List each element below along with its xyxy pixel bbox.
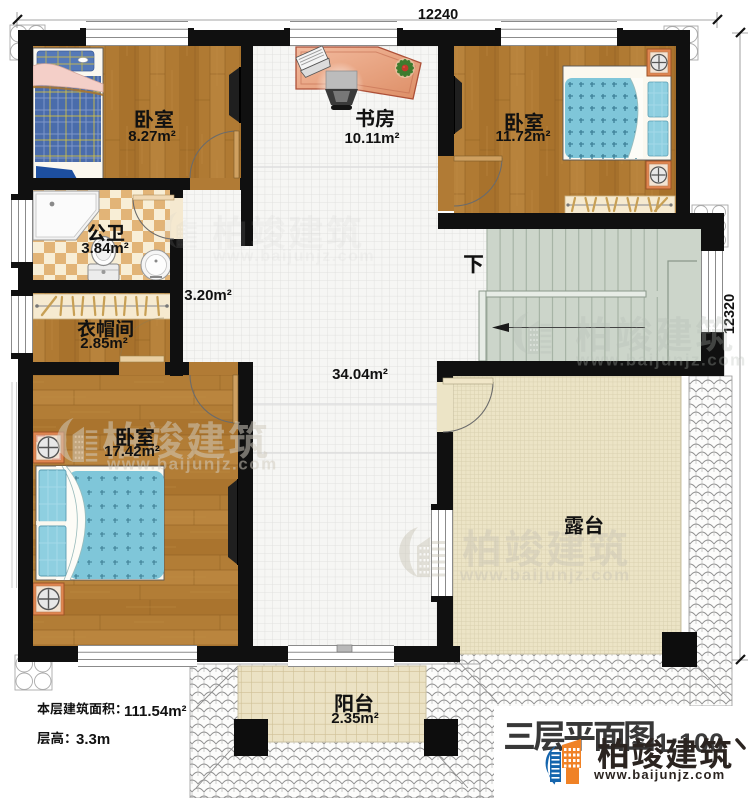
svg-text:2.35m²: 2.35m² — [331, 710, 379, 727]
svg-text:www.baijunjz.com: www.baijunjz.com — [593, 767, 725, 782]
svg-text:www.baijunjz.com: www.baijunjz.com — [459, 566, 631, 585]
svg-text:17.42m²: 17.42m² — [104, 443, 160, 460]
svg-text:www.baijunjz.com: www.baijunjz.com — [212, 248, 375, 265]
svg-text:3.84m²: 3.84m² — [81, 240, 129, 257]
svg-text:34.04m²: 34.04m² — [332, 366, 388, 383]
svg-text:2.85m²: 2.85m² — [80, 335, 128, 352]
svg-text:12240: 12240 — [418, 7, 458, 23]
svg-text:3.20m²: 3.20m² — [184, 287, 232, 304]
svg-text:8.27m²: 8.27m² — [128, 128, 176, 145]
svg-text:111.54m²: 111.54m² — [124, 703, 187, 720]
svg-text:www.baijunjz.com: www.baijunjz.com — [575, 351, 747, 370]
svg-text:10.11m²: 10.11m² — [344, 130, 399, 147]
svg-text:11.72m²: 11.72m² — [495, 128, 550, 145]
svg-text:3.3m: 3.3m — [76, 731, 110, 748]
